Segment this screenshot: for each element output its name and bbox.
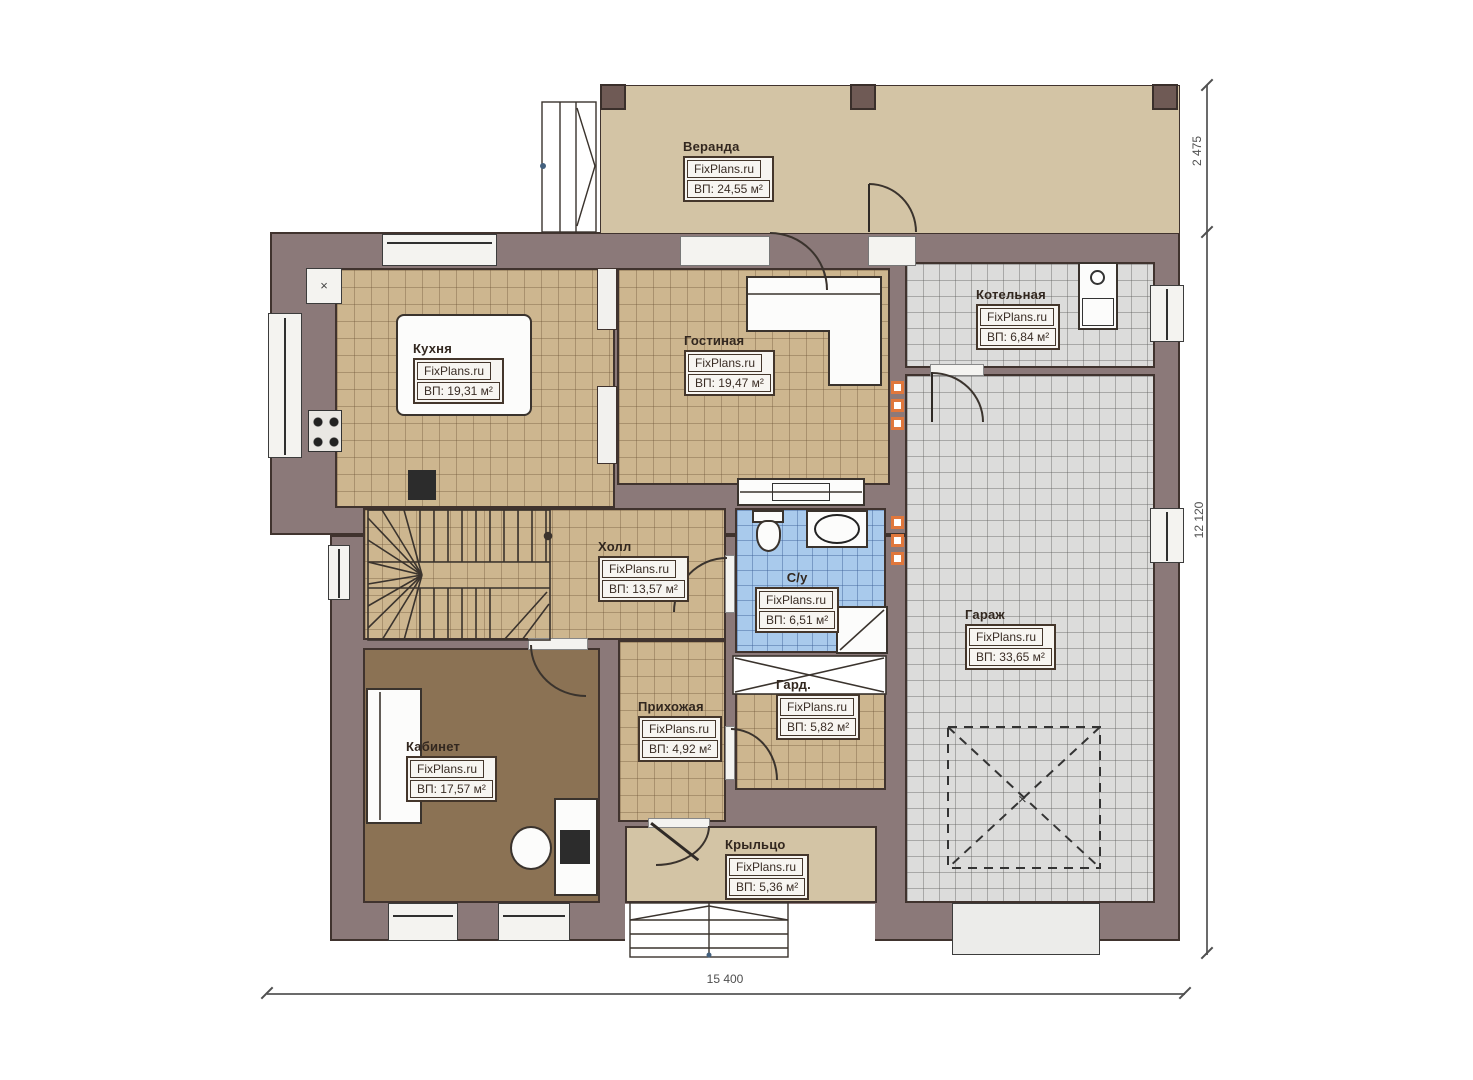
vent-cross-symbol: × [320,278,328,293]
room-name: Котельная [976,287,1060,302]
vent-block [891,534,904,547]
veranda-steps [540,102,596,232]
room-name: Кабинет [406,739,497,754]
room-name: Кухня [413,341,504,356]
porch-cutout [625,904,875,956]
vent-box: × [306,268,342,304]
dimension-line-bottom [267,993,1185,995]
vent-block [891,516,904,529]
door-opening-veranda [868,236,916,266]
room-label-office: Кабинет FixPlans.ru ВП: 17,57 м² [406,739,497,802]
window [268,313,302,458]
window [1150,285,1184,342]
toilet-bowl [756,520,781,552]
room-label-wardrobe: Гард. FixPlans.ru ВП: 5,82 м² [776,677,860,740]
vent-block [891,399,904,412]
watermark: FixPlans.ru [417,362,491,380]
door-leaf [931,372,933,422]
label-box: FixPlans.ru ВП: 17,57 м² [406,756,497,802]
kitchen-stove [308,410,342,452]
watermark: FixPlans.ru [688,354,762,372]
window [1150,508,1184,563]
glass-line [338,549,340,598]
room-area: ВП: 6,84 м² [980,328,1056,346]
watermark: FixPlans.ru [602,560,676,578]
room-name: Крыльцо [725,837,809,852]
office-monitor [560,830,590,864]
watermark: FixPlans.ru [759,591,833,609]
room-area: ВП: 33,65 м² [969,648,1052,666]
room-label-garage: Гараж FixPlans.ru ВП: 33,65 м² [965,607,1056,670]
watermark: FixPlans.ru [969,628,1043,646]
room-name: Веранда [683,139,774,154]
label-box: FixPlans.ru ВП: 6,84 м² [976,304,1060,350]
label-box: FixPlans.ru ВП: 19,47 м² [684,350,775,396]
label-box: FixPlans.ru ВП: 6,51 м² [755,587,839,633]
dimension-value: 2 475 [1190,136,1204,166]
room-area: ВП: 19,47 м² [688,374,771,392]
room-area: ВП: 19,31 м² [417,382,500,400]
room-name: Холл [598,539,689,554]
kitchen-appliance [408,470,436,500]
glass-line [387,242,492,244]
label-box: FixPlans.ru ВП: 5,82 м² [776,694,860,740]
wall-pier [597,268,617,330]
room-area: ВП: 13,57 м² [602,580,685,598]
veranda-column [850,84,876,110]
room-area: ВП: 4,92 м² [642,740,718,758]
label-box: FixPlans.ru ВП: 5,36 м² [725,854,809,900]
room-name: Гараж [965,607,1056,622]
room-label-veranda: Веранда FixPlans.ru ВП: 24,55 м² [683,139,774,202]
dimension-veranda-depth: 2 475 [1190,121,1204,181]
veranda-column [600,84,626,110]
tv-panel [772,483,830,501]
label-box: FixPlans.ru ВП: 19,31 м² [413,358,504,404]
floor-plan: × [0,0,1473,1080]
boiler-base [1082,298,1114,326]
glass-line [284,318,286,455]
room-name: Гард. [776,677,860,692]
room-area: ВП: 5,82 м² [780,718,856,736]
room-name: Гостиная [684,333,775,348]
watermark: FixPlans.ru [780,698,854,716]
door-leaf [868,184,870,232]
label-box: FixPlans.ru ВП: 33,65 м² [965,624,1056,670]
glass-line [503,915,565,917]
room-area: ВП: 17,57 м² [410,780,493,798]
glass-line [1166,512,1168,561]
room-label-boiler: Котельная FixPlans.ru ВП: 6,84 м² [976,287,1060,350]
room-area: ВП: 6,51 м² [759,611,835,629]
dimension-value: 15 400 [707,972,744,986]
door-opening-veranda-living [680,236,770,266]
label-box: FixPlans.ru ВП: 24,55 м² [683,156,774,202]
room-area: ВП: 24,55 м² [687,180,770,198]
room-label-entry: Прихожая FixPlans.ru ВП: 4,92 м² [638,699,722,762]
label-box: FixPlans.ru ВП: 13,57 м² [598,556,689,602]
watermark: FixPlans.ru [642,720,716,738]
room-name: С/у [755,570,839,585]
shower [836,606,888,654]
watermark: FixPlans.ru [410,760,484,778]
label-box: FixPlans.ru ВП: 4,92 м² [638,716,722,762]
room-label-bath: С/у FixPlans.ru ВП: 6,51 м² [755,570,839,633]
window [388,903,458,941]
room-label-kitchen: Кухня FixPlans.ru ВП: 19,31 м² [413,341,504,404]
watermark: FixPlans.ru [980,308,1054,326]
office-chair [510,826,552,870]
glass-line [393,915,453,917]
vent-block [891,552,904,565]
dimension-house-depth: 12 120 [1192,485,1206,555]
watermark: FixPlans.ru [687,160,761,178]
room-label-hall: Холл FixPlans.ru ВП: 13,57 м² [598,539,689,602]
wall-pier [597,386,617,464]
room-label-porch: Крыльцо FixPlans.ru ВП: 5,36 м² [725,837,809,900]
vent-block [891,417,904,430]
room-name: Прихожая [638,699,722,714]
dimension-value: 12 120 [1192,502,1206,539]
room-area: ВП: 5,36 м² [729,878,805,896]
window [498,903,570,941]
glass-line [1166,289,1168,340]
sofa-chaise [828,330,882,386]
dimension-line-right [1206,85,1208,955]
watermark: FixPlans.ru [729,858,803,876]
garage-gate [952,903,1100,955]
window [328,545,350,600]
window [382,234,497,266]
veranda-column [1152,84,1178,110]
boiler-dial [1090,270,1105,285]
washbasin [814,514,860,544]
vent-block [891,381,904,394]
dimension-house-width: 15 400 [660,972,790,986]
room-label-living: Гостиная FixPlans.ru ВП: 19,47 м² [684,333,775,396]
